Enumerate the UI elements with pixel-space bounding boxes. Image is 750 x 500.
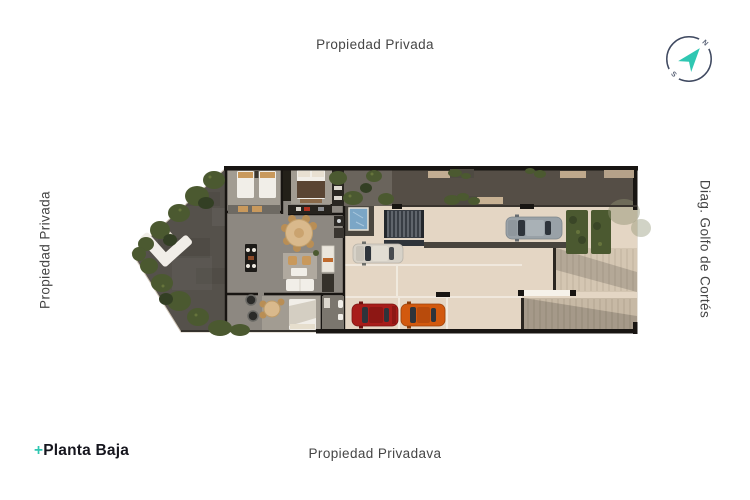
- bedroom-main: [291, 170, 332, 204]
- car-red: [352, 302, 398, 329]
- planta-baja-logo: +Planta Baja: [34, 442, 129, 460]
- car-orange: [401, 302, 445, 329]
- bedroom-bottom: [260, 296, 321, 330]
- car-white: [353, 242, 403, 266]
- logo-text: Planta Baja: [43, 442, 129, 459]
- logo-plus-sign: +: [34, 442, 43, 459]
- wardrobe: [283, 169, 291, 201]
- label-propiedad-privada-top: Propiedad Privada: [316, 37, 434, 52]
- label-propiedad-privada-bottom: Propiedad Privadava: [309, 446, 442, 461]
- car-gray: [506, 215, 562, 242]
- label-diag-golfo-de-cortes: Diag. Golfo de Cortés: [698, 180, 713, 318]
- kitchen-island: [245, 244, 257, 272]
- label-propiedad-privada-left: Propiedad Privada: [38, 191, 53, 309]
- staircase: [384, 210, 424, 246]
- compass-arrow-icon: [678, 48, 700, 72]
- ramp-lower: [521, 298, 637, 330]
- bedroom-twin: [228, 170, 280, 205]
- speed-bump: [518, 290, 576, 296]
- compass-icon: N S: [663, 33, 715, 85]
- floor-plan-rendering: [0, 0, 750, 500]
- plunge-pool: [344, 206, 374, 236]
- ramp-upper: [553, 248, 637, 292]
